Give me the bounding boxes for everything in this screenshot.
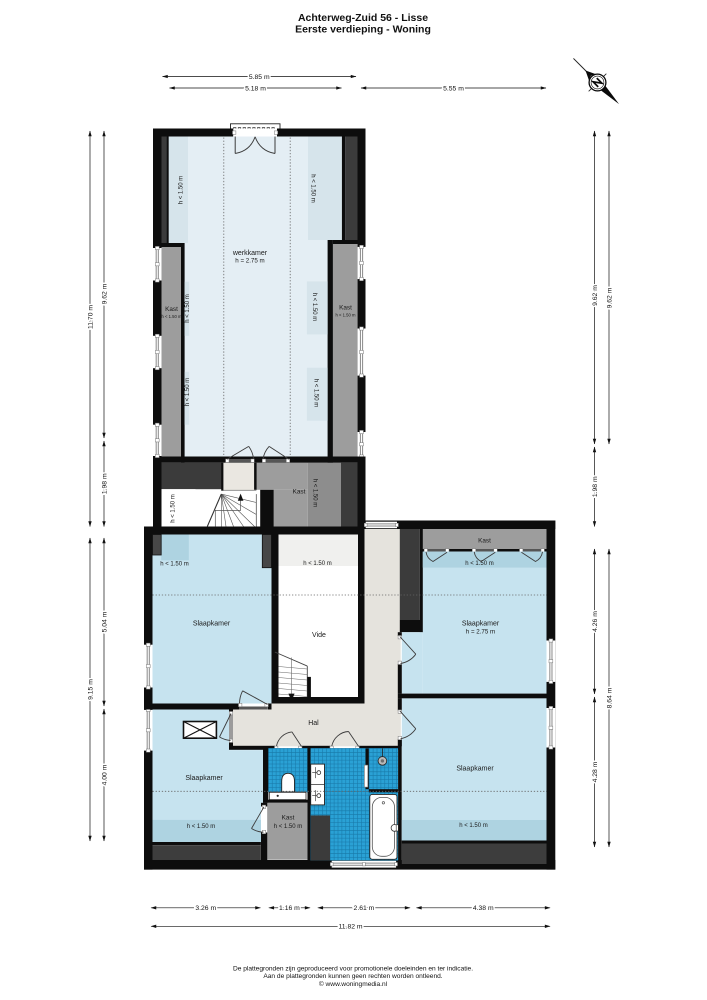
svg-text:h < 1.50 m: h < 1.50 m [187, 824, 216, 830]
svg-text:h = 2.75 m: h = 2.75 m [235, 258, 264, 265]
svg-text:Kast: Kast [478, 538, 491, 545]
svg-text:4.26 m: 4.26 m [592, 611, 599, 632]
svg-text:© www.woningmedia.nl: © www.woningmedia.nl [319, 980, 388, 988]
svg-text:Slaapkamer: Slaapkamer [193, 621, 231, 628]
svg-text:Slaapkamer: Slaapkamer [185, 775, 223, 782]
svg-text:Slaapkamer: Slaapkamer [456, 766, 494, 773]
svg-text:5.18 m: 5.18 m [245, 85, 266, 92]
svg-text:h < 1.50 m: h < 1.50 m [311, 293, 317, 322]
svg-text:Achterweg-Zuid 56 - Lisse: Achterweg-Zuid 56 - Lisse [298, 12, 428, 24]
svg-text:11.70 m: 11.70 m [87, 305, 94, 329]
svg-text:1.98 m: 1.98 m [592, 476, 599, 497]
svg-text:h < 1.50 m: h < 1.50 m [310, 174, 316, 203]
svg-text:h < 1.50 m: h < 1.50 m [171, 494, 177, 523]
svg-text:Slaapkamer: Slaapkamer [462, 621, 500, 628]
svg-text:h < 1.50 m: h < 1.50 m [274, 824, 303, 830]
svg-text:h < 1.50 m: h < 1.50 m [303, 561, 332, 567]
svg-text:Hal: Hal [308, 720, 319, 727]
svg-text:2.61 m: 2.61 m [354, 905, 375, 912]
svg-text:4.28 m: 4.28 m [592, 761, 599, 782]
svg-text:h < 1.50 m: h < 1.50 m [162, 314, 182, 319]
svg-text:Aan de plattegronden kunnen ge: Aan de plattegronden kunnen geen rechten… [263, 973, 442, 980]
svg-text:werkkamer: werkkamer [232, 250, 268, 257]
svg-text:Kast: Kast [165, 306, 178, 313]
svg-text:Kast: Kast [293, 489, 306, 496]
svg-text:11.82 m: 11.82 m [339, 924, 363, 931]
svg-text:Vide: Vide [312, 632, 326, 639]
svg-text:5.85 m: 5.85 m [249, 74, 270, 81]
svg-text:9.62 m: 9.62 m [592, 285, 599, 306]
svg-text:Kast: Kast [282, 815, 295, 822]
svg-text:Eerste verdieping - Woning: Eerste verdieping - Woning [295, 24, 431, 36]
svg-text:5.04 m: 5.04 m [101, 611, 108, 632]
svg-text:4.00 m: 4.00 m [101, 764, 108, 785]
svg-text:5.55 m: 5.55 m [443, 85, 464, 92]
svg-text:8.64 m: 8.64 m [606, 687, 613, 708]
svg-text:h < 1.50 m: h < 1.50 m [185, 378, 191, 407]
svg-text:h < 1.50 m: h < 1.50 m [160, 562, 189, 568]
svg-text:1.16 m: 1.16 m [279, 905, 300, 912]
svg-text:9.15 m: 9.15 m [87, 679, 94, 700]
svg-text:9.62 m: 9.62 m [606, 287, 613, 308]
svg-text:1.98 m: 1.98 m [101, 473, 108, 494]
svg-text:h < 1.50 m: h < 1.50 m [313, 379, 319, 408]
svg-text:h < 1.50 m: h < 1.50 m [185, 294, 191, 323]
svg-text:h < 1.50 m: h < 1.50 m [312, 479, 318, 508]
svg-text:h < 1.50 m: h < 1.50 m [336, 313, 356, 318]
svg-text:9.62 m: 9.62 m [101, 283, 108, 304]
svg-text:4.38 m: 4.38 m [473, 905, 494, 912]
svg-text:h < 1.50 m: h < 1.50 m [179, 176, 185, 205]
svg-text:h < 1.50 m: h < 1.50 m [459, 823, 488, 829]
svg-text:Kast: Kast [339, 305, 352, 312]
svg-text:De plattegronden zijn geproduc: De plattegronden zijn geproduceerd voor … [233, 966, 473, 973]
svg-text:h = 2.75 m: h = 2.75 m [466, 629, 495, 636]
svg-text:h < 1.50 m: h < 1.50 m [465, 561, 494, 567]
svg-text:3.26 m: 3.26 m [195, 905, 216, 912]
